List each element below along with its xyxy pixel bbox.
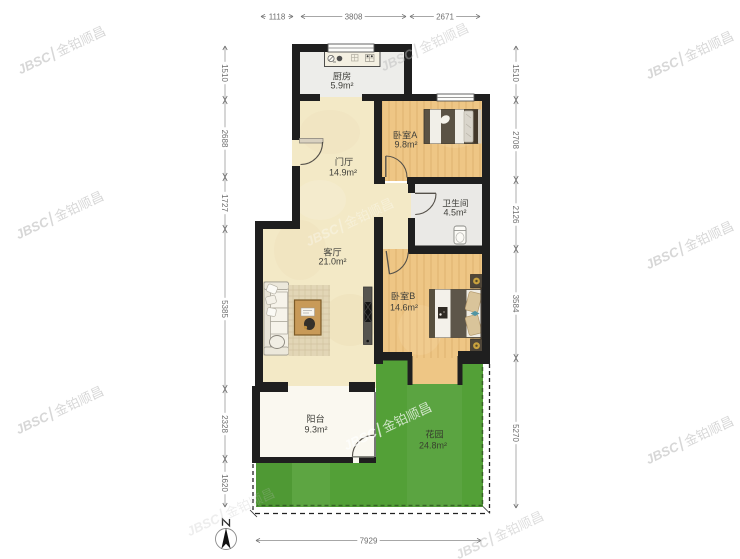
svg-text:2708: 2708: [511, 131, 520, 149]
svg-text:1727: 1727: [220, 194, 229, 212]
svg-text:7929: 7929: [360, 536, 378, 545]
svg-text:1118: 1118: [269, 12, 286, 21]
svg-text:9.8m²: 9.8m²: [394, 140, 417, 150]
svg-text:3584: 3584: [511, 295, 520, 313]
svg-text:1510: 1510: [511, 64, 520, 82]
svg-text:2688: 2688: [220, 130, 229, 148]
svg-text:1620: 1620: [220, 474, 229, 492]
svg-text:5385: 5385: [220, 300, 229, 318]
svg-text:5270: 5270: [511, 424, 520, 442]
svg-text:4.5m²: 4.5m²: [443, 208, 466, 218]
svg-text:14.9m²: 14.9m²: [329, 168, 357, 178]
svg-text:21.0m²: 21.0m²: [318, 257, 346, 267]
svg-text:2126: 2126: [511, 206, 520, 224]
svg-text:5.9m²: 5.9m²: [330, 81, 353, 91]
svg-text:3808: 3808: [345, 12, 363, 21]
svg-text:1510: 1510: [220, 64, 229, 82]
svg-text:2328: 2328: [220, 415, 229, 433]
svg-text:2671: 2671: [436, 12, 454, 21]
svg-text:9.3m²: 9.3m²: [304, 425, 327, 435]
svg-text:24.8m²: 24.8m²: [419, 441, 447, 451]
svg-text:B: B: [409, 291, 415, 301]
svg-text:14.6m²: 14.6m²: [390, 303, 418, 313]
